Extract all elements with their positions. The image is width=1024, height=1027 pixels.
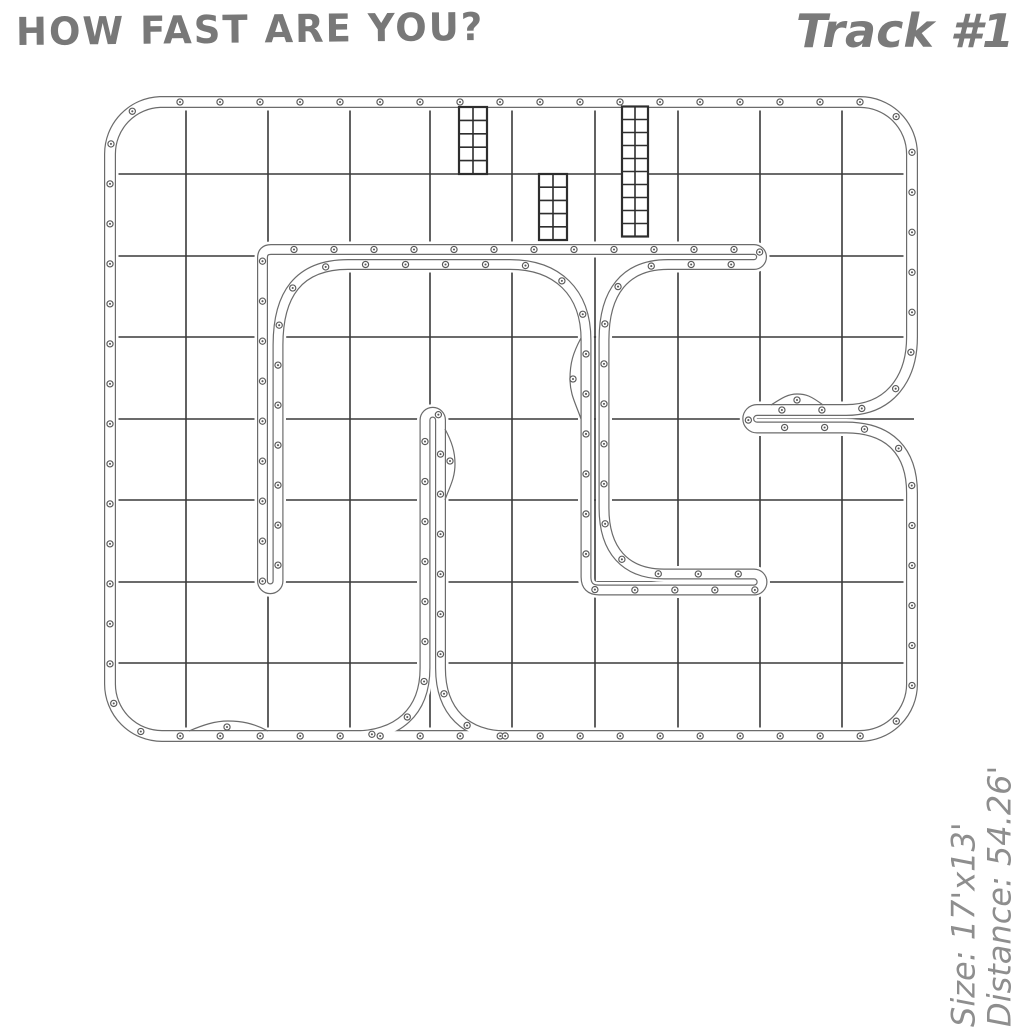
distance-label: Distance: 54.26'	[982, 766, 1018, 1027]
page: { "header": { "title": "HOW FAST ARE YOU…	[0, 0, 1024, 768]
ladder-section-3	[622, 107, 648, 237]
ladder-section-2	[539, 174, 567, 240]
track-dimensions: Size: 17'x13' Distance: 54.26'	[946, 766, 1018, 1027]
track-diagram	[0, 0, 1024, 768]
size-label: Size: 17'x13'	[946, 766, 982, 1027]
ladder-section-1	[459, 107, 487, 174]
